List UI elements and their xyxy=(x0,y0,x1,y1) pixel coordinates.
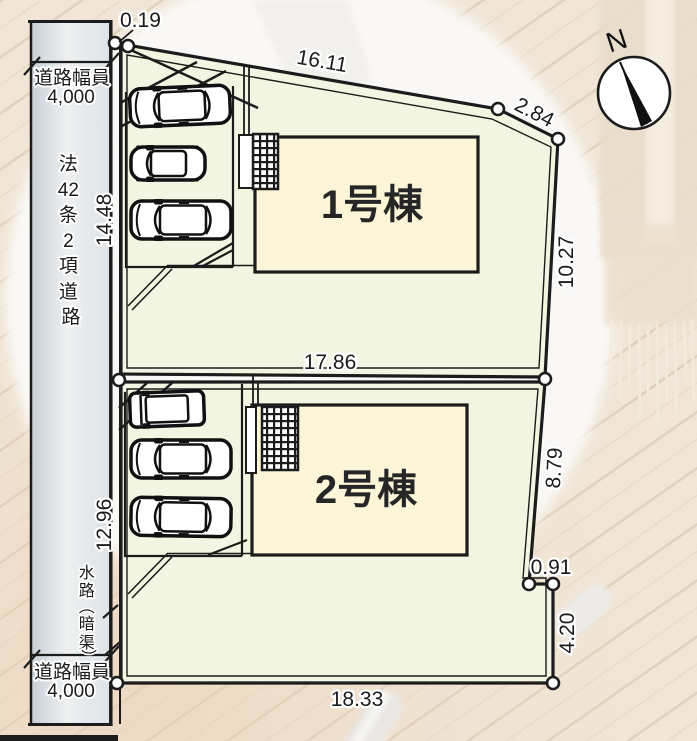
dimension-east-lot2: 8.79 xyxy=(542,447,567,489)
building-1-label: 1号棟 xyxy=(321,183,424,227)
site-plan-svg: 1号棟 2号棟 0.19 16.11 2.8 xyxy=(0,0,697,741)
dimension-bottom: 18.33 xyxy=(331,688,384,711)
car-icon xyxy=(131,438,231,481)
dimension-step: 0.91 xyxy=(531,556,572,579)
porch-grid-1 xyxy=(253,134,278,189)
blanket xyxy=(604,225,697,325)
road-width-value-bottom: 4,000 xyxy=(47,681,95,702)
building-2: 2号棟 xyxy=(246,405,467,555)
car-icon xyxy=(131,199,231,242)
road-width-value-top: 4,000 xyxy=(47,87,95,108)
road-width-label-top: 道路幅員 xyxy=(34,67,110,89)
building-1: 1号棟 xyxy=(239,134,478,272)
road-width-label-bottom: 道路幅員 xyxy=(34,661,110,683)
dimension-east-lower: 4.20 xyxy=(556,613,579,654)
car-icon xyxy=(131,145,205,183)
porch-grid-2 xyxy=(262,406,298,470)
dimension-offset-top: 0.19 xyxy=(120,9,161,32)
dimension-middle: 17.86 xyxy=(304,351,357,374)
car-icon xyxy=(129,388,204,430)
building-2-label: 2号棟 xyxy=(315,468,418,512)
porch-strip-1 xyxy=(239,135,253,188)
car-icon xyxy=(131,495,232,540)
dimension-west-lot1: 14.48 xyxy=(93,194,116,247)
car-icon xyxy=(129,82,231,129)
dimension-east-lot1: 10.27 xyxy=(555,236,578,289)
porch-strip-2 xyxy=(246,407,256,473)
road-bottom-bar xyxy=(0,735,118,741)
waterway-label: 水 路 ︵ 暗 渠 ︶ xyxy=(79,564,99,667)
dimension-west-lot2: 12.96 xyxy=(93,499,116,552)
